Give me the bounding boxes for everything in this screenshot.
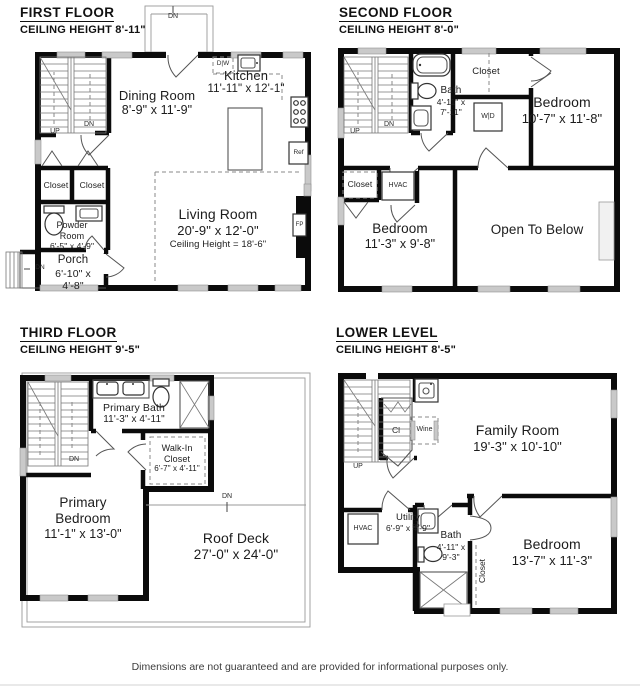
room-name: Living Room (162, 206, 274, 223)
fridge-tag: Ref (289, 150, 308, 157)
dn-entry-tag: DN (162, 13, 184, 20)
ceiling-height-third: CEILING HEIGHT 9'-5" (20, 344, 140, 356)
up-tag: UP (46, 128, 64, 135)
kitchen-island (228, 108, 262, 170)
room-dims: 10'-7" x 11'-8" (506, 111, 618, 126)
dn-tag: DN (64, 456, 84, 463)
room-name: Bath (427, 85, 475, 97)
room-dims: 4'-11" x 9'-3" (428, 542, 474, 562)
floor-title-second: SECOND FLOOR (339, 5, 453, 22)
room-label-kitchen: Kitchen 11'-11" x 12'-1" (196, 68, 296, 97)
washer-dryer-tag: W|D (474, 113, 502, 120)
room-name: Dining Room (107, 88, 207, 103)
ceiling-height-second: CEILING HEIGHT 8'-0" (339, 24, 459, 36)
room-dims: 8'-9" x 11'-9" (107, 103, 207, 118)
electrical-panel-tag: EP (409, 525, 423, 531)
room-label-walkin-closet: Walk-In Closet 6'-7" x 4'-11" (149, 443, 205, 474)
room-label-bath-lower: Bath 4'-11" x 9'-3" (428, 530, 474, 562)
open-below-ledge (599, 202, 614, 260)
room-label-closet-a: Closet (40, 180, 72, 190)
closet-hanger-zigzag (384, 402, 411, 412)
dn-deck-tag: DN (215, 493, 239, 500)
room-dims: 6'-10" x 4'-8" (46, 268, 100, 293)
room-name: Utility (385, 512, 431, 523)
room-name: Closet (40, 180, 72, 190)
room-label-closet-b: Closet (76, 180, 108, 190)
floor-title-lower: LOWER LEVEL (336, 325, 438, 342)
room-name: Open To Below (478, 222, 596, 238)
dishwasher-tag: D|W (213, 61, 233, 68)
sink-icon (76, 206, 102, 221)
second-floor-stairs (344, 57, 408, 133)
room-dims: 11'-3" x 4'-11" (93, 414, 175, 426)
room-label-closet-top: Closet (460, 66, 512, 77)
room-name: Porch (46, 254, 100, 268)
dn-porch-tag: DN (30, 265, 50, 272)
dn-tag: DN (380, 121, 398, 128)
shower-icon (420, 572, 467, 608)
room-name: Closet (76, 180, 108, 190)
room-dims: 6'-5" x 4'-9" (22, 241, 122, 251)
floor-title-third: THIRD FLOOR (20, 325, 117, 342)
room-dims: 19'-3" x 10'-10" (460, 439, 575, 454)
room-name: Bedroom (352, 221, 448, 237)
room-dims: 13'-7" x 11'-3" (494, 553, 610, 568)
room-note: Ceiling Height = 18'-6" (162, 239, 274, 250)
fireplace-icon (293, 184, 311, 258)
room-dims: 4'-11" x 7'-11" (427, 97, 475, 117)
room-label-open-below: Open To Below (478, 222, 596, 238)
fireplace-tag: FP (293, 222, 306, 228)
stove-icon (291, 97, 308, 127)
room-name: Kitchen (196, 68, 296, 83)
closet-bifold-doors (344, 202, 368, 218)
up-tag: UP (346, 128, 364, 135)
room-dims: 11'-1" x 13'-0" (18, 527, 148, 542)
room-name: Primary Bedroom (46, 495, 120, 527)
room-name: Closet (460, 66, 512, 77)
room-label-roof-deck: Roof Deck 27'-0" x 24'-0" (180, 530, 292, 562)
room-dims: 11'-11" x 12'-1" (196, 83, 296, 97)
room-label-bedroom-lower: Bedroom 13'-7" x 11'-3" (494, 536, 610, 568)
room-dims: 6'-9" x 4'-9" (385, 523, 431, 533)
room-dims: 6'-7" x 4'-11" (121, 464, 233, 473)
room-dims: 11'-3" x 9'-8" (352, 237, 448, 252)
dn-tag: DN (80, 121, 98, 128)
room-dims: 27'-0" x 24'-0" (180, 547, 292, 563)
up-tag: UP (348, 463, 368, 470)
hvac-tag: HVAC (383, 182, 413, 189)
room-name: Closet (341, 179, 379, 189)
room-name: Bedroom (506, 94, 618, 111)
closet-small-tag: Cl (386, 426, 406, 435)
room-label-closet-vertical: Closet (477, 549, 487, 593)
room-name: Bedroom (494, 536, 610, 553)
floorplan-page: FIRST FLOOR CEILING HEIGHT 8'-11" SECOND… (0, 0, 640, 686)
third-floor-stairs (28, 382, 88, 466)
room-label-bedroom-left: Bedroom 11'-3" x 9'-8" (352, 221, 448, 252)
room-label-utility: Utility 6'-9" x 4'-9" (385, 512, 431, 533)
second-floor-plan (338, 48, 617, 292)
room-label-bedroom-right: Bedroom 10'-7" x 11'-8" (506, 94, 618, 126)
room-label-primary-bath: Primary Bath 11'-3" x 4'-11" (93, 402, 175, 426)
hvac-tag: HVAC (348, 525, 378, 532)
room-name: Bath (428, 530, 474, 542)
room-label-porch: Porch 6'-10" x 4'-8" (46, 254, 100, 292)
room-label-living: Living Room 20'-9" x 12'-0" Ceiling Heig… (162, 206, 274, 250)
ceiling-height-lower: CEILING HEIGHT 8'-5" (336, 344, 456, 356)
wet-bar-sink-icon (415, 379, 438, 402)
room-name: Closet (477, 559, 487, 583)
floor-title-first: FIRST FLOOR (20, 5, 114, 22)
wine-tag: Wine (411, 426, 438, 433)
room-label-closet-left: Closet (341, 179, 379, 189)
room-name: Walk-In Closet (149, 443, 205, 464)
room-label-primary-bedroom: Primary Bedroom 11'-1" x 13'-0" (46, 495, 120, 542)
room-name: Powder Room (50, 220, 94, 241)
disclaimer-text: Dimensions are not guaranteed and are pr… (0, 661, 640, 673)
room-label-dining: Dining Room 8'-9" x 11'-9" (107, 88, 207, 118)
closet-bifold-doors (42, 151, 98, 166)
egress-window (444, 604, 470, 616)
ceiling-height-first: CEILING HEIGHT 8'-11" (20, 24, 146, 36)
room-dims: 20'-9" x 12'-0" (162, 223, 274, 238)
room-label-bath2: Bath 4'-11" x 7'-11" (427, 85, 475, 117)
room-label-family: Family Room 19'-3" x 10'-10" (460, 422, 575, 454)
lower-level-stairs (344, 380, 410, 462)
shower-icon (180, 381, 209, 428)
room-name: Roof Deck (180, 530, 292, 547)
bathtub-icon (413, 54, 450, 76)
room-name: Family Room (460, 422, 575, 439)
room-name: Primary Bath (93, 402, 175, 414)
room-label-powder: Powder Room 6'-5" x 4'-9" (50, 220, 94, 251)
